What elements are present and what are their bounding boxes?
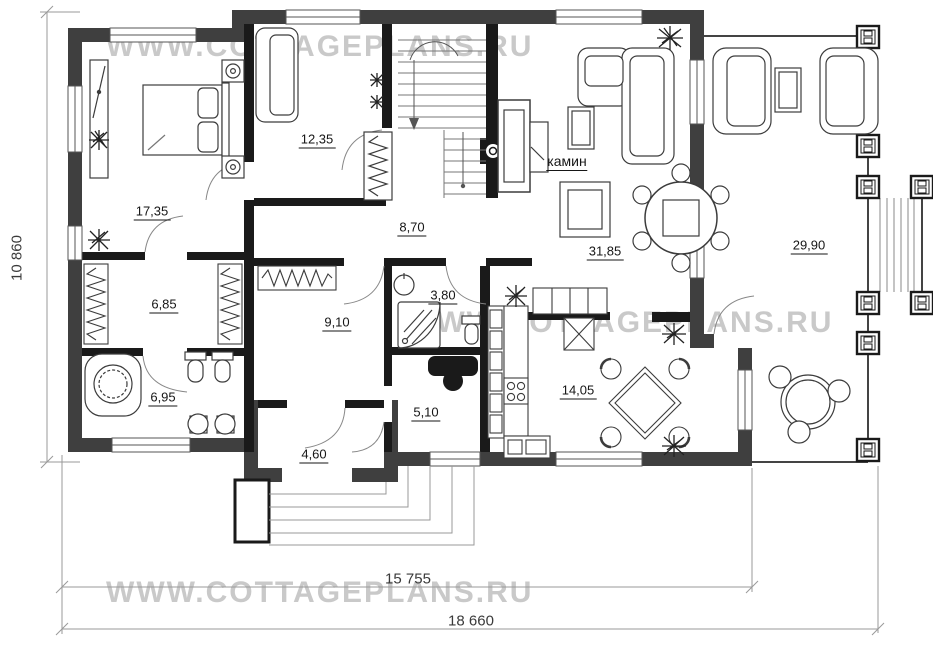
dining-table-small [601,359,689,447]
fireplace [498,100,548,192]
room-label-bathroom: 6,95 [148,390,177,407]
room-label-dressing-room: 6,85 [149,297,178,314]
toilet [212,352,233,382]
room-label-wardrobe-room: 12,35 [299,132,336,149]
room-label-bedroom: 17,35 [134,204,171,221]
room-label-utility-room: 5,10 [411,405,440,422]
shower-room-fixtures [394,273,480,348]
fireplace-label: камин [546,153,587,171]
bedroom-furniture [90,60,244,178]
bed [143,83,229,157]
sofa [256,28,298,122]
room-label-hallway: 8,70 [397,220,426,237]
kitchen-island-hood [564,318,594,350]
tv-stand [560,182,610,237]
jacuzzi [85,354,141,416]
stove [504,378,528,404]
terrace-table [775,68,801,112]
room-label-kitchen: 14,05 [560,383,597,400]
sink [188,414,208,434]
floor-plan-canvas: WWW.COTTAGEPLANS.RU WWW.COTTAGEPLANS.RU … [0,0,933,645]
dining-table-round [633,164,729,272]
dimension-width-inner: 15 755 [385,571,431,588]
room-label-entry: 4,60 [299,447,328,464]
wardrobe-hangers [364,132,392,200]
staircase [398,40,486,198]
room-label-living-room: 31,85 [587,244,624,261]
sink [215,414,235,434]
closet-rack [258,266,336,290]
room-label-shower-room: 3,80 [428,288,457,305]
dimension-width-total: 18 660 [448,613,494,630]
terrace-round-table [769,366,850,443]
wardrobe-strip [90,60,108,178]
terrace-side-steps [880,198,914,292]
shower-cabin [398,302,440,348]
dressing-racks [84,264,336,344]
toilet [462,316,480,344]
utility-table [428,356,478,391]
wardrobe-room-furniture [256,28,392,200]
room-label-terrace: 29,90 [791,238,828,255]
bar-counter [533,288,607,314]
terrace-sofa [713,48,771,134]
coffee-table [568,107,594,149]
terrace-sofa [820,48,878,134]
nightstand [222,60,244,82]
room-label-closet-room: 9,10 [322,315,351,332]
dimension-height-total: 10 860 [9,235,26,281]
wash-basin [394,273,414,295]
nightstand [222,156,244,178]
tall-cabinets [488,306,504,438]
floor-plan-drawing [0,0,933,645]
toilet [185,352,206,382]
